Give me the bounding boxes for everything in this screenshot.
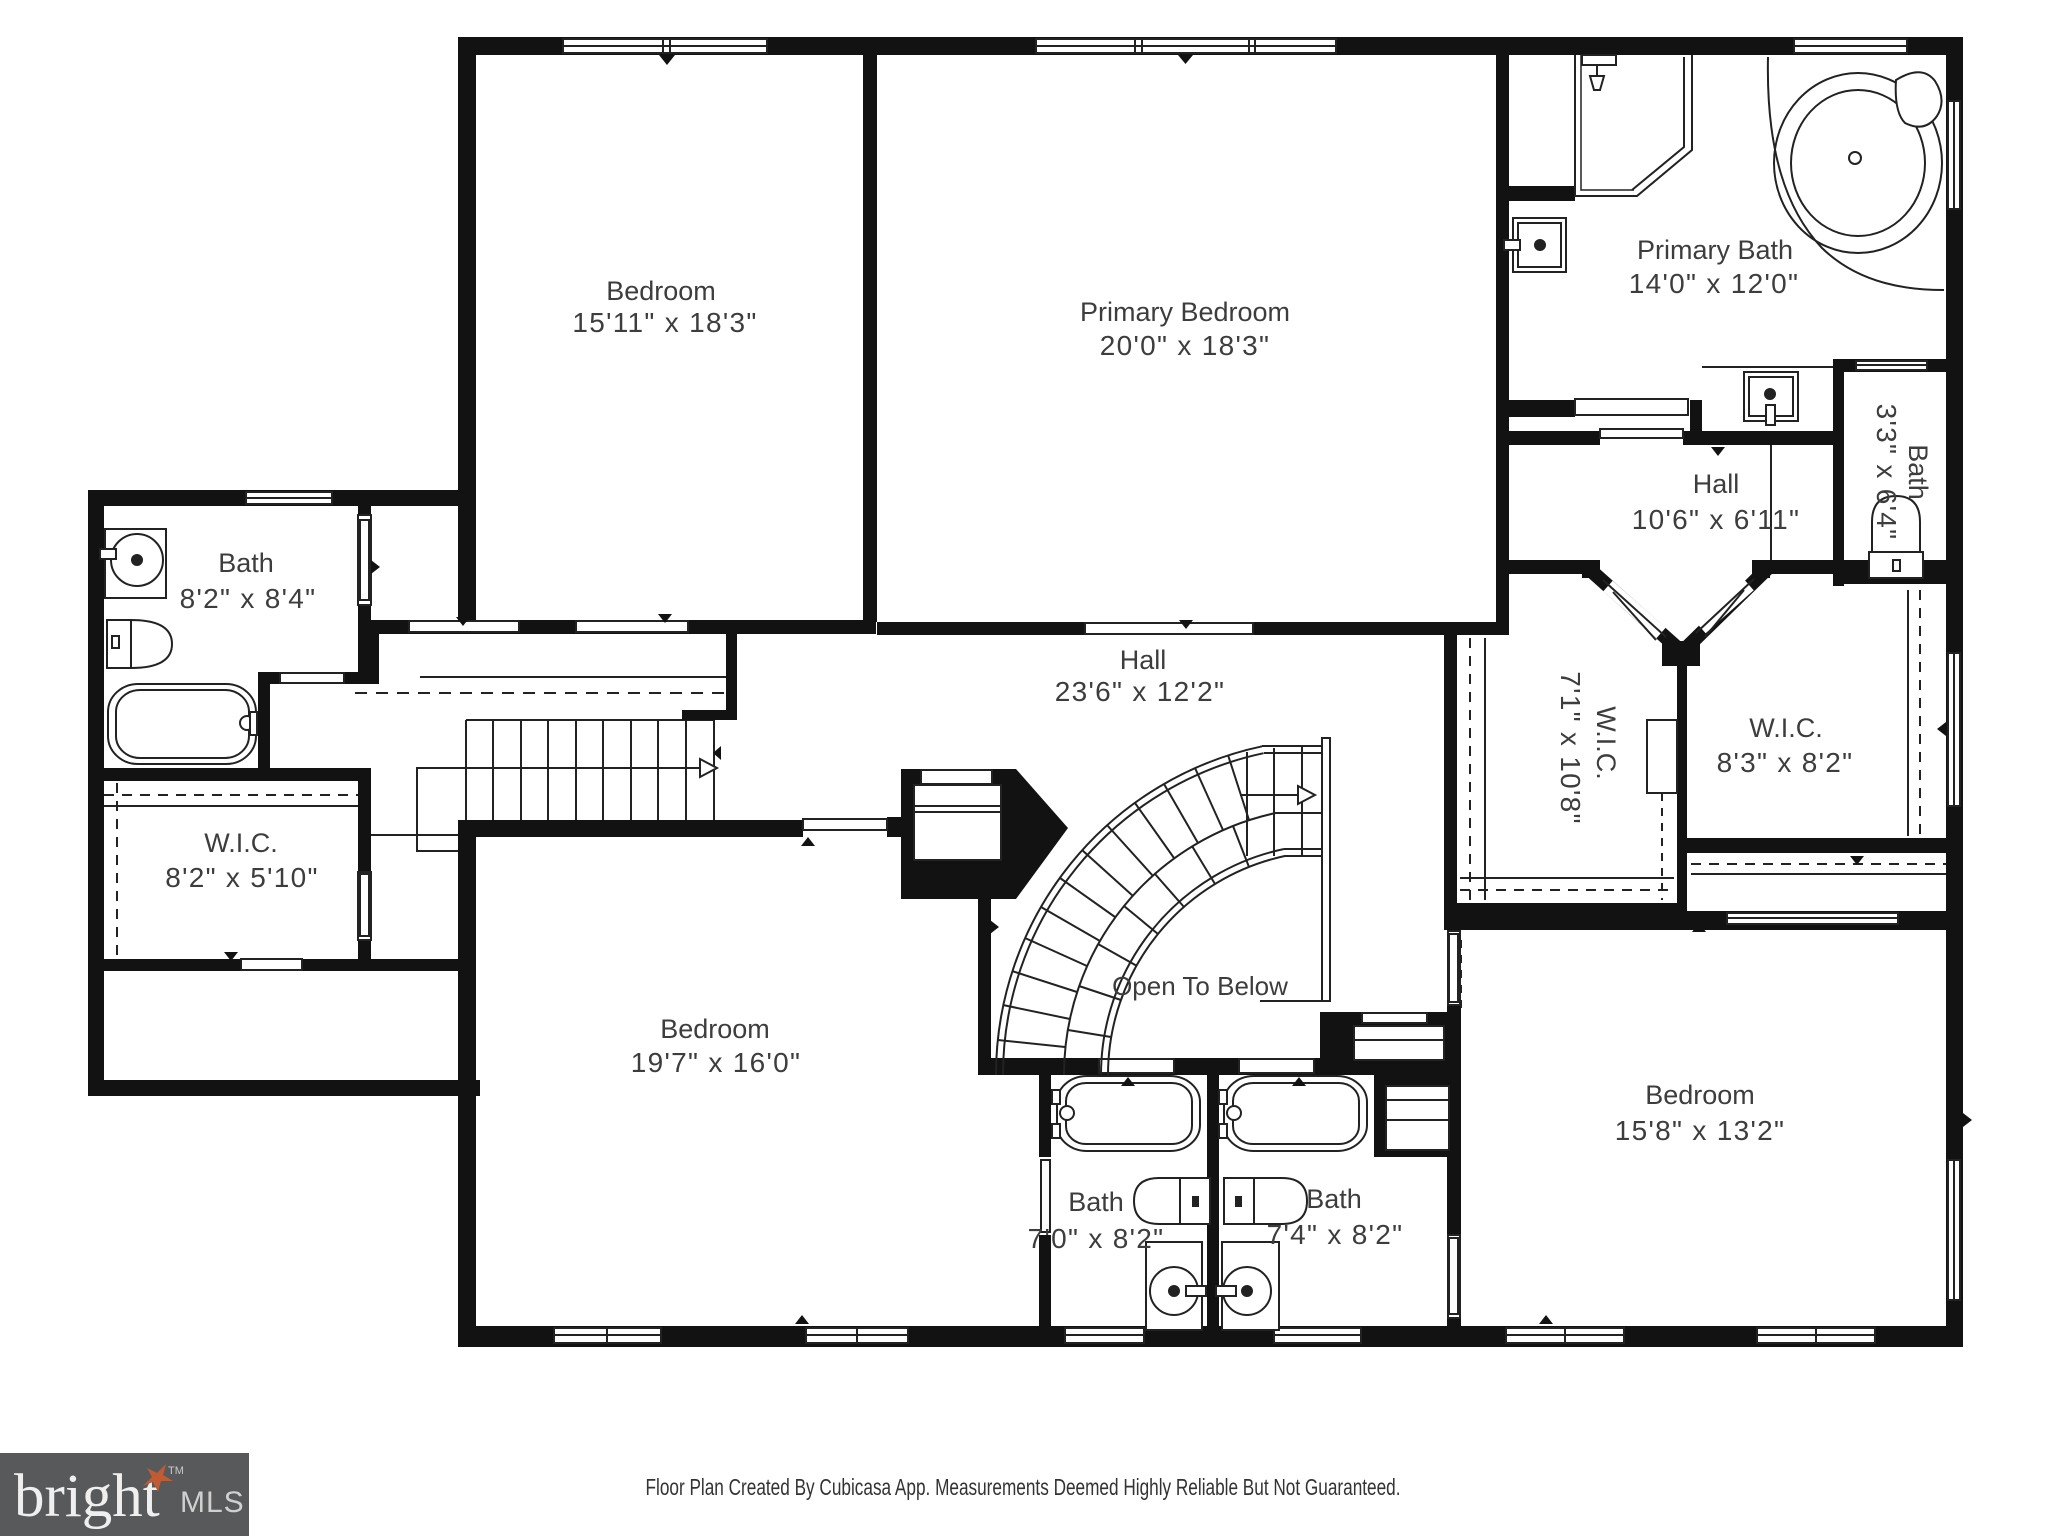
svg-text:Bath: Bath <box>218 548 274 578</box>
svg-text:3'3" x 6'4": 3'3" x 6'4" <box>1871 404 1902 541</box>
svg-text:Primary Bath: Primary Bath <box>1637 235 1793 265</box>
svg-text:8'2" x 8'4": 8'2" x 8'4" <box>180 583 317 614</box>
svg-text:19'7" x 16'0": 19'7" x 16'0" <box>631 1047 801 1078</box>
svg-text:Hall: Hall <box>1120 645 1167 675</box>
svg-text:14'0" x 12'0": 14'0" x 12'0" <box>1629 268 1799 299</box>
svg-text:Open To Below: Open To Below <box>1112 971 1288 1001</box>
svg-text:Bedroom: Bedroom <box>660 1014 770 1044</box>
svg-text:Bath: Bath <box>1306 1184 1362 1214</box>
svg-text:7'1" x 10'8": 7'1" x 10'8" <box>1555 671 1586 825</box>
svg-text:Floor Plan Created By Cubicasa: Floor Plan Created By Cubicasa App. Meas… <box>646 1474 1401 1500</box>
svg-text:8'2" x 5'10": 8'2" x 5'10" <box>165 862 319 893</box>
svg-text:W.I.C.: W.I.C. <box>1749 713 1823 743</box>
svg-text:Bedroom: Bedroom <box>606 276 716 306</box>
svg-text:Bath: Bath <box>1068 1187 1124 1217</box>
svg-text:Primary Bedroom: Primary Bedroom <box>1080 297 1290 327</box>
svg-text:Bedroom: Bedroom <box>1645 1080 1755 1110</box>
svg-text:7'0" x 8'2": 7'0" x 8'2" <box>1028 1223 1165 1254</box>
svg-text:23'6" x 12'2": 23'6" x 12'2" <box>1055 676 1225 707</box>
svg-text:bright: bright <box>14 1463 160 1530</box>
svg-text:Hall: Hall <box>1693 469 1740 499</box>
svg-text:15'11" x 18'3": 15'11" x 18'3" <box>572 307 757 338</box>
svg-text:Bath: Bath <box>1903 444 1933 500</box>
svg-text:MLS: MLS <box>180 1486 245 1519</box>
svg-text:20'0" x 18'3": 20'0" x 18'3" <box>1100 330 1270 361</box>
svg-text:8'3" x 8'2": 8'3" x 8'2" <box>1717 747 1854 778</box>
svg-text:TM: TM <box>168 1465 184 1477</box>
svg-text:W.I.C.: W.I.C. <box>1591 706 1621 780</box>
svg-text:W.I.C.: W.I.C. <box>204 828 278 858</box>
svg-text:7'4" x 8'2": 7'4" x 8'2" <box>1267 1219 1404 1250</box>
svg-text:15'8" x 13'2": 15'8" x 13'2" <box>1615 1115 1785 1146</box>
svg-text:10'6" x 6'11": 10'6" x 6'11" <box>1632 504 1800 535</box>
